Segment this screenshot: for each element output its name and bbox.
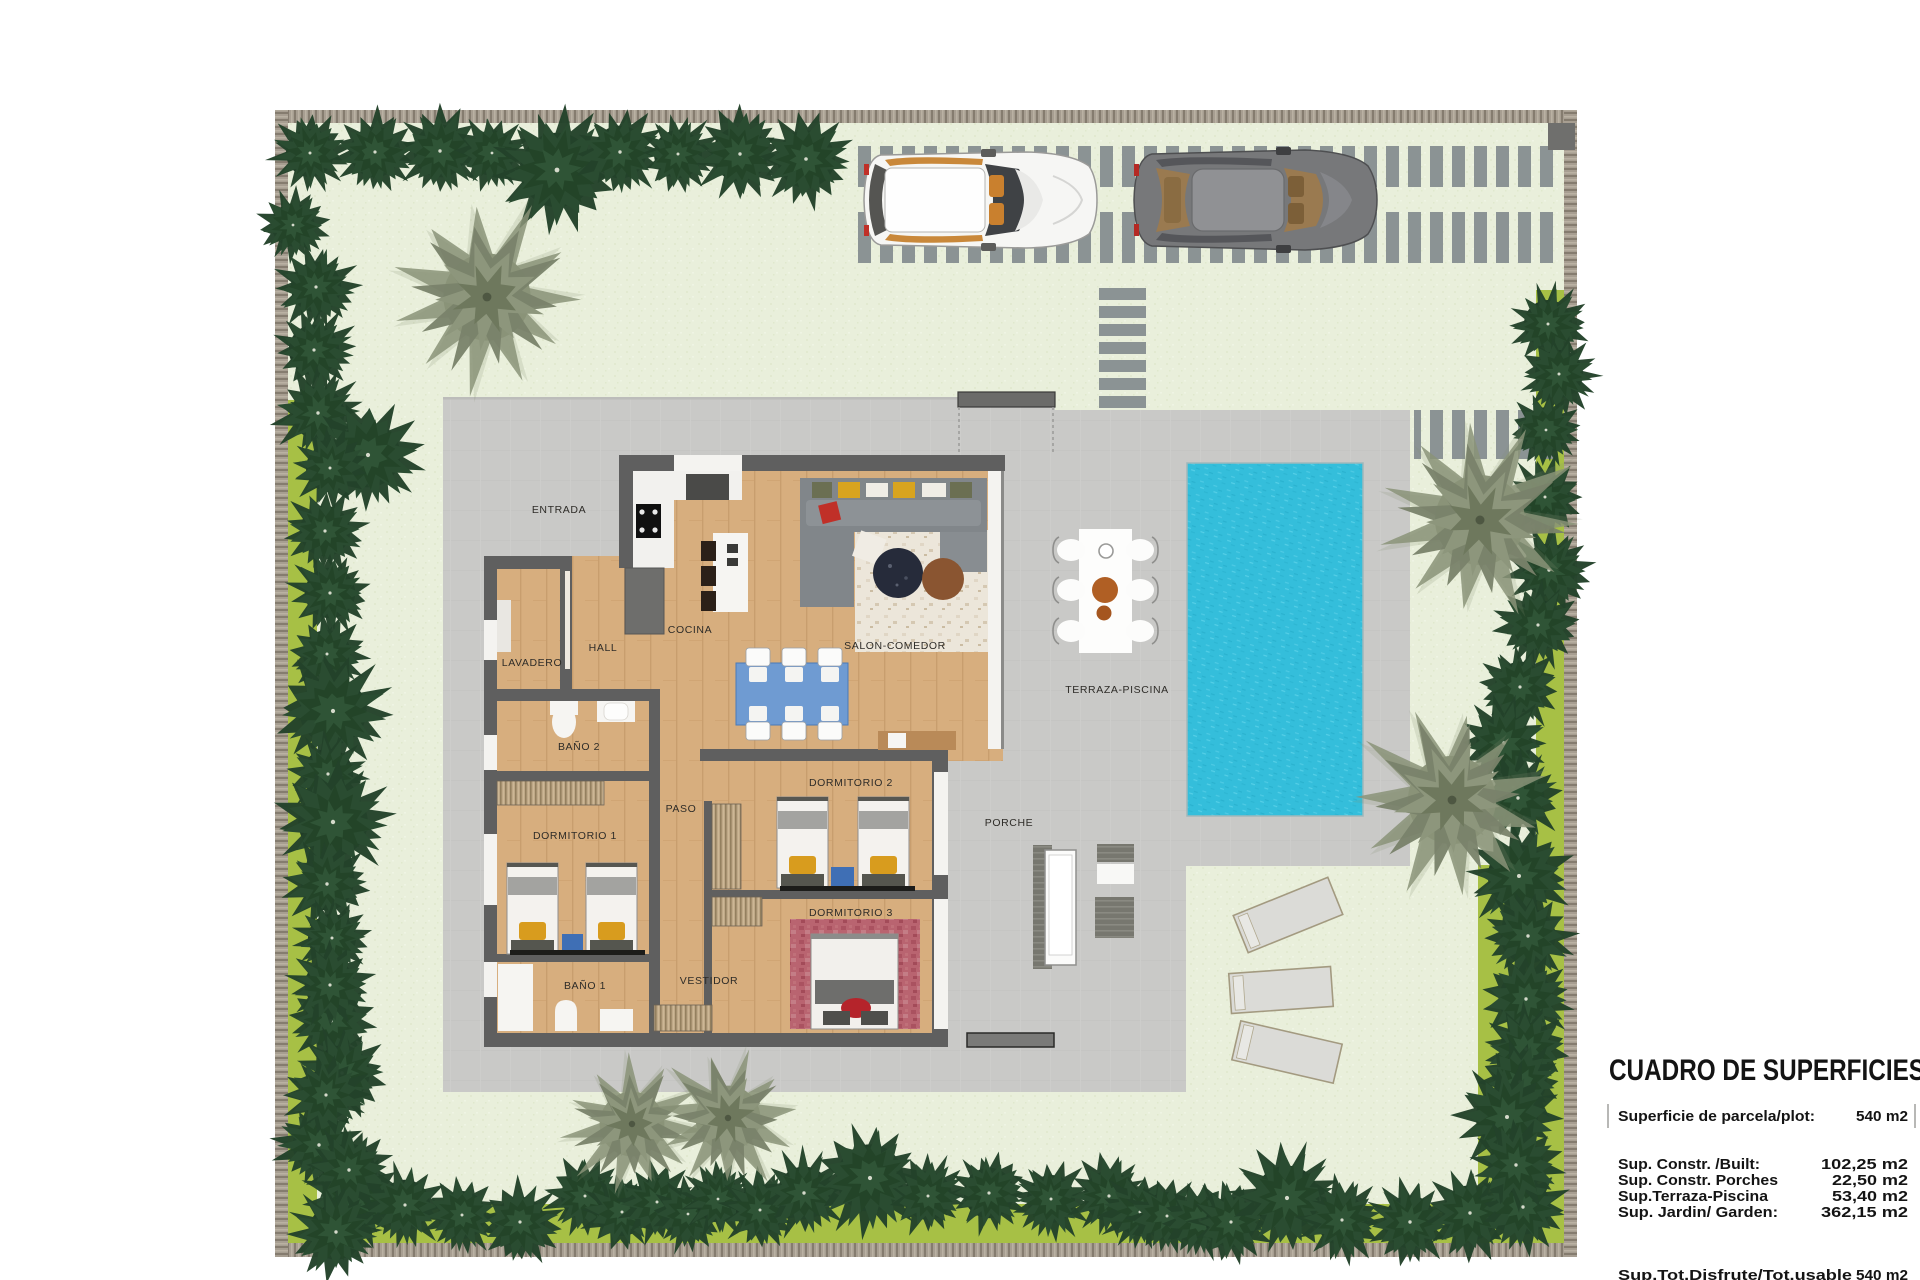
- svg-text:Sup. Constr. Porches: Sup. Constr. Porches: [1618, 1172, 1778, 1189]
- svg-text:DORMITORIO 1: DORMITORIO 1: [533, 830, 617, 842]
- svg-text:VESTIDOR: VESTIDOR: [680, 975, 738, 987]
- svg-text:53,40 m2: 53,40 m2: [1832, 1188, 1908, 1205]
- svg-text:Sup.Tot.Disfrute/Tot.usable: Sup.Tot.Disfrute/Tot.usable: [1618, 1267, 1852, 1280]
- svg-text:SALON-COMEDOR: SALON-COMEDOR: [844, 640, 946, 652]
- svg-text:Sup. Constr. /Built:: Sup. Constr. /Built:: [1618, 1156, 1760, 1173]
- svg-text:22,50 m2: 22,50 m2: [1832, 1172, 1908, 1189]
- svg-text:ENTRADA: ENTRADA: [532, 504, 586, 516]
- svg-text:CUADRO DE SUPERFICIES: CUADRO DE SUPERFICIES: [1609, 1054, 1920, 1087]
- svg-text:540 m2: 540 m2: [1856, 1267, 1908, 1280]
- svg-text:BAÑO 1: BAÑO 1: [564, 979, 606, 992]
- svg-text:102,25 m2: 102,25 m2: [1821, 1156, 1908, 1173]
- svg-text:BAÑO 2: BAÑO 2: [558, 740, 600, 753]
- svg-text:DORMITORIO 3: DORMITORIO 3: [809, 907, 893, 919]
- svg-text:TERRAZA-PISCINA: TERRAZA-PISCINA: [1065, 684, 1169, 696]
- svg-text:540 m2: 540 m2: [1856, 1108, 1908, 1125]
- svg-text:Sup.Terraza-Piscina: Sup.Terraza-Piscina: [1618, 1188, 1769, 1205]
- svg-text:COCINA: COCINA: [668, 624, 712, 636]
- svg-text:HALL: HALL: [589, 642, 618, 654]
- svg-text:PORCHE: PORCHE: [985, 817, 1034, 829]
- svg-text:DORMITORIO 2: DORMITORIO 2: [809, 777, 893, 789]
- svg-text:Sup. Jardin/ Garden:: Sup. Jardin/ Garden:: [1618, 1204, 1778, 1221]
- svg-text:362,15 m2: 362,15 m2: [1821, 1204, 1908, 1221]
- svg-text:LAVADERO: LAVADERO: [502, 657, 562, 669]
- svg-text:PASO: PASO: [666, 803, 697, 815]
- svg-text:Superficie de parcela/plot:: Superficie de parcela/plot:: [1618, 1108, 1815, 1125]
